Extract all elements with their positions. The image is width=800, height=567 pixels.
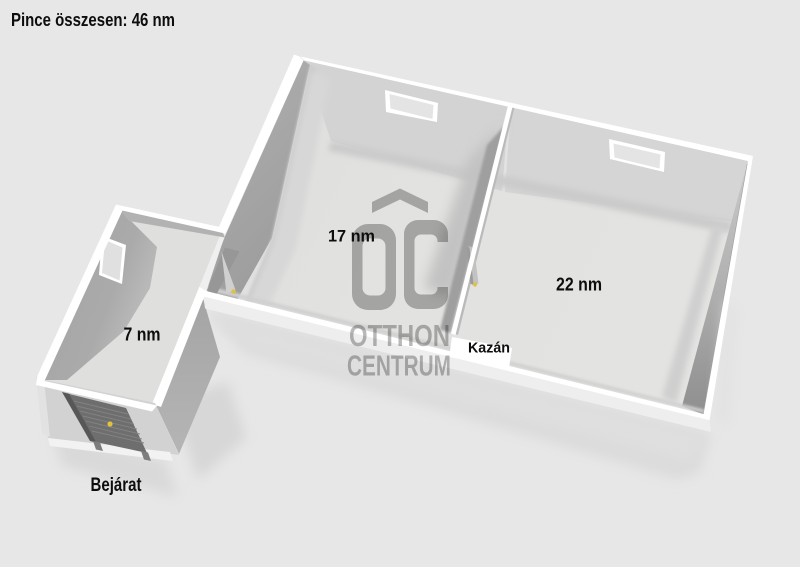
svg-text:Pince összesen: 46 nm: Pince összesen: 46 nm (11, 10, 175, 30)
svg-text:Kazán: Kazán (468, 340, 510, 357)
svg-text:CENTRUM: CENTRUM (347, 351, 451, 383)
svg-text:OTTHON: OTTHON (349, 318, 450, 353)
svg-text:17 nm: 17 nm (328, 226, 375, 245)
svg-text:7 nm: 7 nm (124, 325, 161, 345)
svg-text:Bejárat: Bejárat (91, 475, 143, 496)
svg-text:22 nm: 22 nm (556, 274, 602, 294)
